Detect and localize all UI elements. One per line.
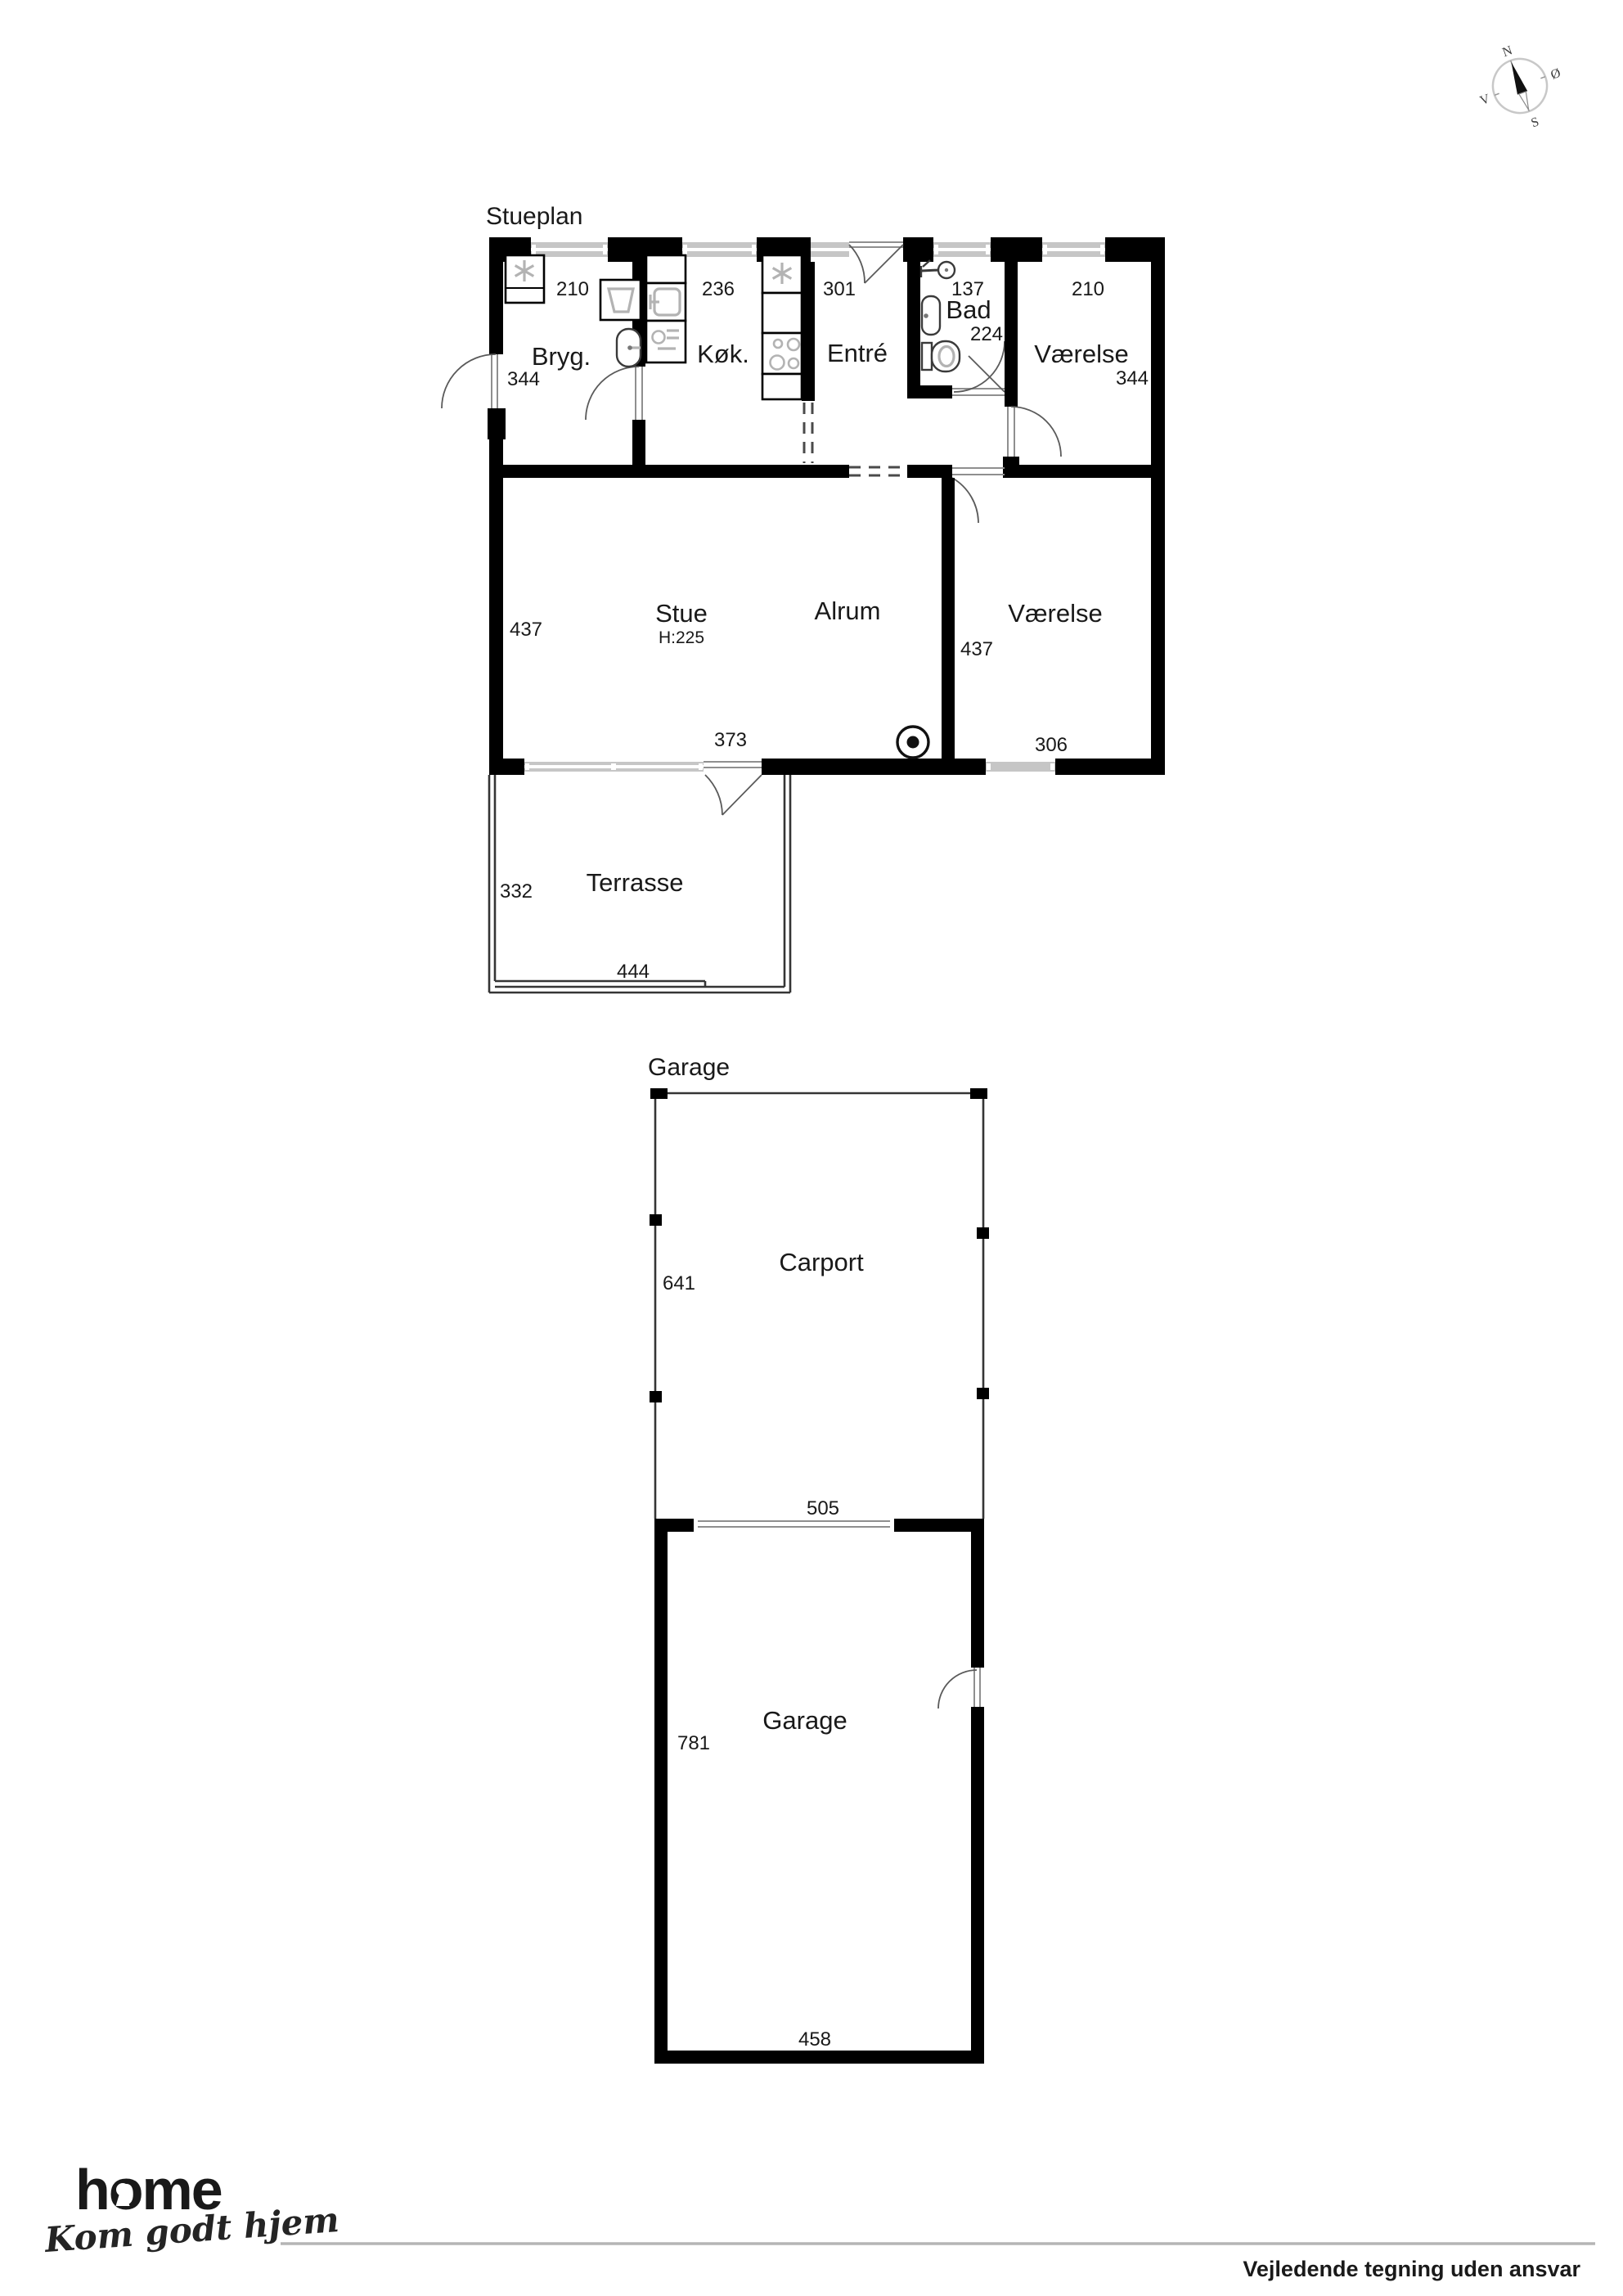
- stueplan-right-wall: [1151, 237, 1165, 775]
- wall-alrum-vaerelse2: [942, 478, 955, 759]
- garage-title: Garage: [648, 1054, 730, 1081]
- wood-stove-icon: [897, 727, 928, 758]
- dim-vaerelse1-width: 210: [1072, 278, 1104, 300]
- wall-bad-bottom: [907, 385, 952, 398]
- stueplan-left-wall: [488, 237, 506, 775]
- kitchen-counter-right-icon: [762, 293, 802, 333]
- carport-outline: [655, 1093, 983, 1519]
- wall-entre-bad: [907, 262, 920, 385]
- dim-terrasse-height: 332: [500, 880, 533, 903]
- room-label-alrum: Alrum: [815, 597, 881, 625]
- kitchen-counter-left-icon: [646, 255, 686, 283]
- floorplan-page: N Ø S V Stueplan: [0, 0, 1623, 2296]
- compass-label-s: S: [1529, 115, 1540, 130]
- room-label-garage: Garage: [762, 1706, 847, 1735]
- room-label-carport: Carport: [779, 1248, 864, 1276]
- laundry-basket-icon: [600, 280, 641, 320]
- room-label-stue: Stue: [655, 599, 708, 628]
- stueplan-plan: 210 236 301 137 210 Bryg. 344 Køk. Entré…: [442, 237, 1165, 993]
- door-vaerelse1: [1008, 407, 1061, 457]
- dim-terrasse-width: 444: [617, 961, 650, 983]
- dim-bryg-width: 210: [556, 278, 589, 300]
- footer: home Kom godt hjem Vejledende tegning ud…: [43, 2158, 1595, 2281]
- stueplan-title: Stueplan: [486, 203, 582, 230]
- room-label-kok: Køk.: [697, 340, 749, 368]
- carport-posts: [650, 1088, 989, 1402]
- dim-carport-height: 641: [663, 1272, 695, 1294]
- wall-bad-vaerelse1: [1003, 262, 1019, 478]
- wall-kok-entre: [802, 262, 815, 401]
- open-connection-kok-alrum: [804, 403, 812, 463]
- fridge-icon: [762, 255, 802, 293]
- bryg-basin-icon: [617, 329, 641, 367]
- compass-label-e: Ø: [1549, 66, 1562, 83]
- window-bad: [933, 242, 991, 257]
- garage-door: [938, 1668, 980, 1708]
- room-label-vaerelse2: Værelse: [1008, 599, 1102, 628]
- dim-alrum-height: 437: [960, 638, 993, 660]
- washing-machine-icon: [506, 255, 544, 303]
- stove-icon: [762, 333, 802, 374]
- disclaimer-text: Vejledende tegning uden ansvar: [1243, 2257, 1580, 2281]
- kitchen-counter-right2-icon: [762, 374, 802, 399]
- dim-vaerelse1-height: 344: [1116, 367, 1149, 389]
- compass-icon: N Ø S V: [1465, 30, 1576, 144]
- dim-garage-width: 458: [798, 2028, 831, 2051]
- dim-carport-width: 505: [807, 1497, 839, 1519]
- bathroom-sink-icon: [922, 296, 940, 335]
- window-kok: [682, 242, 757, 257]
- wall-divider: [489, 465, 1165, 478]
- room-label-stue-height: H:225: [659, 628, 704, 647]
- room-label-vaerelse1: Værelse: [1034, 340, 1128, 368]
- compass-needle-north: [1506, 61, 1527, 95]
- door-bad: [952, 341, 1005, 395]
- dim-bad-height: 224: [970, 323, 1003, 345]
- window-entre-sidelight: [811, 242, 849, 257]
- shower-icon: [921, 260, 955, 278]
- carport-garage-divider: [654, 1519, 984, 1532]
- dim-bryg-height: 344: [507, 368, 540, 390]
- toilet-icon: [922, 341, 960, 371]
- room-label-bryg: Bryg.: [532, 342, 591, 371]
- door-bryg-kok: [586, 367, 642, 420]
- open-connection-entre-alrum: [849, 467, 907, 475]
- window-vaerelse1: [1042, 242, 1105, 257]
- bryg-exterior-door: [442, 354, 497, 408]
- garage-walls: [654, 1519, 984, 2064]
- dishwasher-icon: [646, 321, 686, 362]
- room-label-bad: Bad: [946, 295, 991, 324]
- front-door: [849, 242, 903, 283]
- compass-needle-south: [1519, 92, 1532, 111]
- dim-kok-width: 236: [702, 278, 735, 300]
- dim-terrace-door-width: 373: [714, 729, 747, 751]
- dim-stue-height: 437: [510, 619, 542, 641]
- dim-garage-height: 781: [677, 1732, 710, 1754]
- compass-label-n: N: [1500, 43, 1514, 60]
- compass-label-w: V: [1478, 92, 1492, 108]
- terrace-door: [704, 762, 762, 815]
- garage-plan: Carport 641 505 Garage 781 458: [650, 1088, 989, 2064]
- kitchen-sink-icon: [646, 283, 686, 321]
- room-label-terrasse: Terrasse: [587, 868, 684, 897]
- room-label-entre: Entré: [827, 339, 888, 367]
- door-alrum: [952, 468, 1005, 523]
- dim-entre-width: 301: [823, 278, 856, 300]
- dim-vaerelse2-width: 306: [1035, 734, 1068, 756]
- window-vaerelse2: [986, 762, 1055, 772]
- window-stue: [524, 762, 704, 772]
